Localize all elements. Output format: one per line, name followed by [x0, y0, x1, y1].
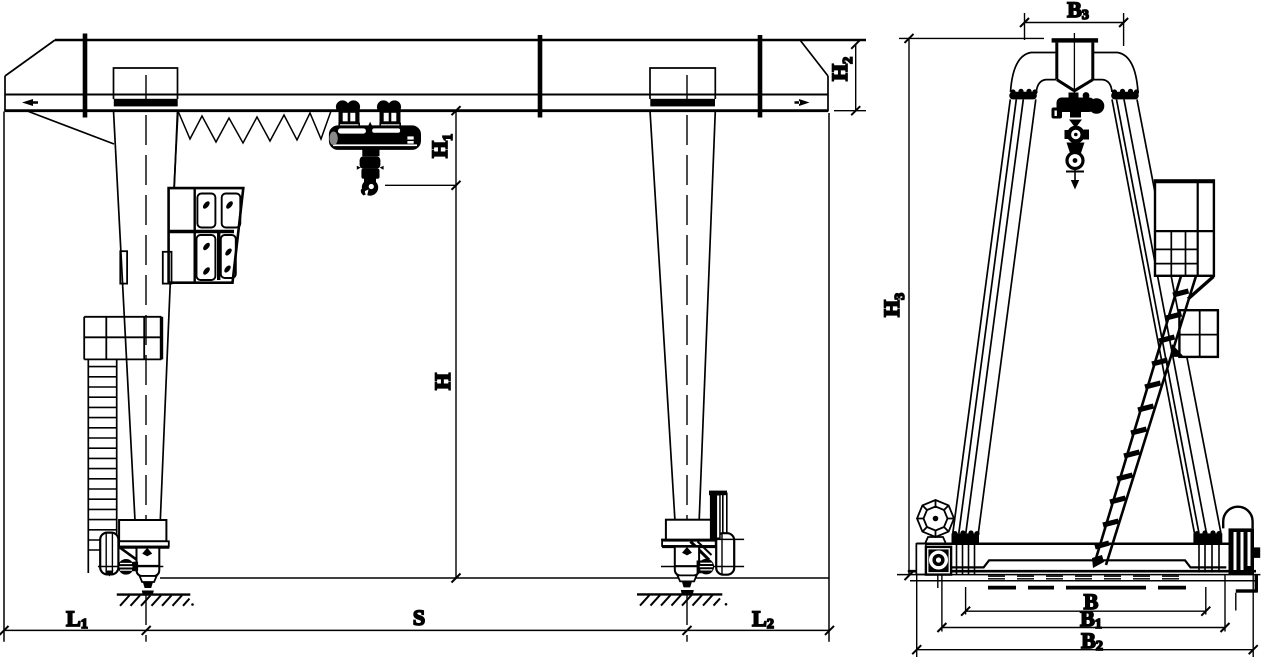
svg-text:H1: H1	[427, 134, 456, 158]
svg-text:L1: L1	[66, 606, 88, 632]
svg-text:B3: B3	[1067, 0, 1089, 23]
svg-text:H3: H3	[879, 293, 908, 317]
svg-text:H2: H2	[827, 57, 856, 81]
svg-text:L2: L2	[752, 606, 774, 632]
svg-text:H: H	[430, 373, 455, 390]
svg-text:S: S	[413, 605, 425, 630]
